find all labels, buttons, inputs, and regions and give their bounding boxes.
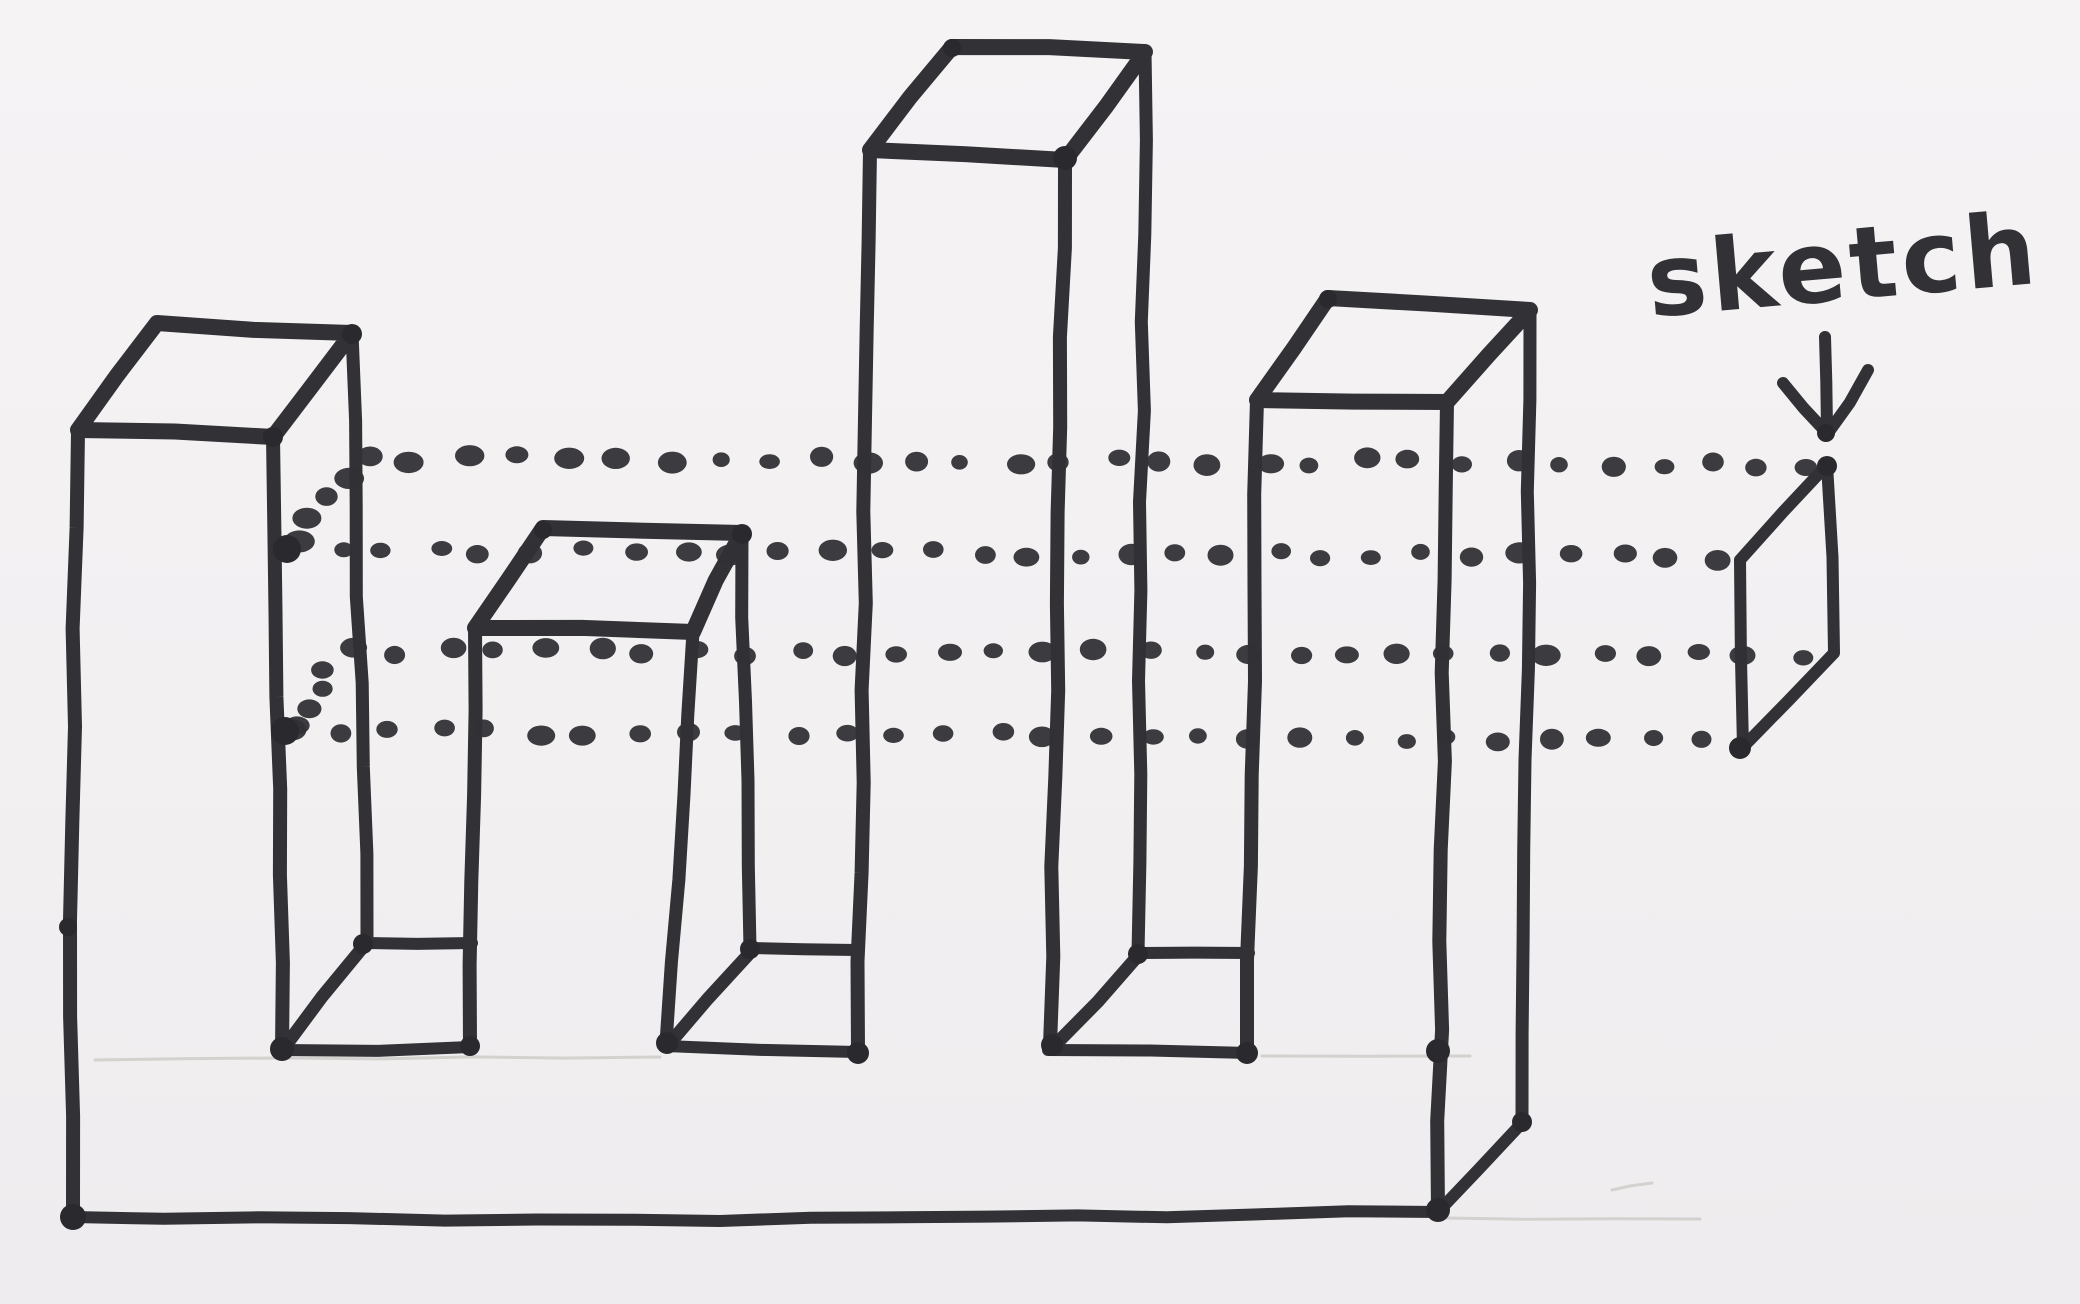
guide-dot	[1688, 644, 1710, 660]
marker-stroke-layer	[70, 47, 1868, 1221]
guide-dot	[1614, 545, 1637, 563]
notch1-floor-depth-edge	[284, 947, 363, 1048]
guide-dot	[1636, 646, 1661, 666]
guide-dot	[1460, 548, 1483, 567]
guide-dot	[1398, 734, 1416, 749]
ink-blob	[740, 939, 760, 959]
tower3-back-right-edge	[1138, 52, 1146, 953]
ink-blob	[1512, 1112, 1532, 1132]
guide-dot	[658, 452, 687, 474]
guide-dot	[759, 454, 780, 469]
pencil-guide-slab-top-left	[95, 1057, 660, 1060]
guide-dot	[716, 544, 745, 565]
guide-dot	[1310, 550, 1330, 566]
guide-dot	[370, 543, 390, 558]
ink-blob	[943, 39, 961, 57]
guide-dot	[1730, 646, 1756, 665]
tower3-top-face	[870, 47, 1145, 160]
guide-dot	[1236, 729, 1259, 749]
guide-dot	[297, 699, 321, 718]
guide-dot	[767, 542, 789, 560]
guide-dot	[1490, 644, 1510, 661]
ink-blob	[342, 324, 362, 344]
guide-dot	[993, 723, 1015, 741]
guide-dot	[810, 447, 833, 467]
guide-dot	[724, 725, 746, 741]
guide-dot	[1438, 729, 1456, 744]
guide-dot	[527, 726, 555, 746]
guide-dot	[334, 542, 353, 557]
notch3-floor-front-edge	[1048, 1050, 1249, 1053]
notch2-floor-depth-edge	[670, 955, 748, 1043]
ink-blob	[1128, 944, 1148, 964]
guide-dot	[872, 542, 894, 558]
guide-dot	[1705, 550, 1731, 571]
guide-dot	[1795, 459, 1818, 476]
guide-dot	[1196, 645, 1214, 660]
guide-dot	[625, 543, 648, 560]
tower4-top-face	[1257, 298, 1530, 402]
guide-dot	[883, 728, 904, 743]
guide-dot	[434, 720, 455, 737]
guide-dot	[1271, 543, 1291, 559]
guide-dot	[1745, 459, 1766, 477]
guide-dot	[340, 638, 367, 658]
ink-blob	[1426, 1039, 1450, 1063]
guide-dot	[1540, 729, 1564, 750]
ink-blob	[1041, 1034, 1063, 1056]
ink-blob	[732, 524, 752, 544]
guide-dot	[482, 642, 502, 659]
guide-dot	[1108, 450, 1130, 466]
ink-blob	[1817, 424, 1835, 442]
guide-dot	[629, 644, 653, 663]
extrusion-sketch-figure: sketch	[0, 0, 2080, 1304]
guide-dot	[1384, 644, 1410, 664]
ink-blob	[60, 1204, 86, 1230]
tower3-front-left-edge	[858, 150, 871, 1052]
guide-dot	[1602, 457, 1626, 477]
guide-dot	[1300, 458, 1319, 474]
guide-dot	[836, 725, 858, 742]
guide-dot	[311, 661, 334, 678]
guide-dot	[602, 448, 630, 469]
guide-dot	[313, 681, 333, 697]
guide-dot	[1644, 730, 1663, 746]
guide-dot	[1793, 650, 1813, 665]
guide-dot	[569, 726, 596, 746]
tower4-front-left-edge	[1247, 400, 1257, 1053]
guide-dot	[1452, 456, 1472, 472]
guide-dot	[905, 452, 928, 472]
guide-dot	[1189, 728, 1207, 743]
ink-blob	[270, 1037, 294, 1061]
ink-blob	[1426, 1198, 1450, 1222]
guide-dot	[629, 725, 651, 742]
guide-dot	[590, 638, 616, 660]
guide-dot	[505, 446, 528, 463]
guide-dot	[334, 468, 364, 489]
guide-dot	[984, 643, 1003, 658]
guide-dot	[1208, 545, 1234, 566]
guide-dot	[1507, 450, 1531, 471]
guide-dot	[1291, 647, 1312, 664]
paper-background: sketch	[0, 0, 2080, 1304]
guide-dot	[1411, 544, 1430, 560]
guide-dot	[933, 725, 954, 741]
guide-dot	[788, 727, 809, 745]
guide-dot	[441, 638, 467, 658]
guide-dot	[1072, 550, 1089, 565]
tower2-top-face	[475, 528, 742, 632]
ink-blob	[1729, 737, 1751, 759]
guide-dot	[1236, 645, 1261, 664]
guide-dot	[573, 541, 593, 556]
ink-blob	[847, 1042, 869, 1064]
guide-dot	[1287, 727, 1312, 747]
sketch-label: sketch	[1642, 190, 2044, 341]
guide-dot	[938, 644, 962, 661]
guide-dot	[455, 445, 484, 466]
extrusion-guide-row-2	[272, 540, 1731, 571]
label-arrow-head-left	[1783, 383, 1826, 432]
ink-blob	[263, 427, 283, 447]
ink-blob	[1236, 1042, 1258, 1064]
guide-dot	[1586, 729, 1611, 747]
guide-dot	[975, 546, 996, 564]
tower4-front-right-edge	[1437, 402, 1447, 1212]
notch3-floor-depth-edge	[1055, 958, 1136, 1045]
guide-dot	[1505, 542, 1534, 563]
guide-dot	[854, 452, 883, 474]
label-arrow-shaft	[1825, 337, 1827, 430]
notch2-floor-back-edge	[750, 948, 856, 950]
guide-dot	[1361, 550, 1381, 565]
guide-dot	[1354, 447, 1380, 468]
guide-dot	[1194, 454, 1221, 476]
guide-dot	[885, 646, 907, 662]
guide-dot	[1164, 544, 1185, 561]
ink-blob	[271, 717, 299, 745]
guide-dot	[1007, 454, 1035, 474]
tower2-front-right-edge	[666, 632, 693, 1043]
guide-dot	[315, 487, 337, 506]
tower2-back-right-edge	[742, 533, 750, 948]
guide-dot	[676, 542, 702, 561]
guide-dot	[532, 638, 559, 658]
notch1-floor-back-edge	[367, 943, 472, 944]
guide-dot	[376, 721, 397, 738]
extrusion-guide-row-1	[358, 445, 1818, 477]
pencil-guide-slab-bottom-right	[1445, 1218, 1700, 1219]
guide-dot	[1550, 457, 1568, 472]
guide-dot	[518, 543, 542, 563]
guide-dot	[394, 452, 424, 473]
extrusion-guide-row-3	[340, 638, 1813, 666]
guide-dot	[1653, 548, 1678, 568]
tower4-back-right-edge	[1522, 310, 1530, 1123]
guide-dot	[1140, 642, 1162, 659]
guide-dot	[1029, 642, 1057, 663]
guide-dot	[466, 545, 489, 563]
guide-dot	[1119, 544, 1145, 565]
guide-dot	[1047, 453, 1068, 471]
guide-dot	[292, 508, 321, 529]
guide-dot	[384, 646, 405, 664]
guide-dot	[677, 723, 700, 742]
guide-dot	[1395, 450, 1419, 469]
ink-blob	[273, 535, 301, 563]
guide-dot	[1014, 548, 1040, 567]
guide-dot	[1655, 459, 1675, 474]
guide-dot	[1258, 454, 1284, 473]
extrusion-guide-row-4	[279, 719, 1712, 751]
guide-dot	[474, 720, 494, 738]
tower2-front-left-edge	[470, 628, 476, 1047]
ink-blob	[59, 918, 77, 936]
guide-dot	[1433, 645, 1454, 661]
guide-dot	[1692, 731, 1712, 748]
guide-dot	[358, 447, 383, 467]
guide-dot	[1080, 639, 1107, 660]
slab-bottom-edge	[73, 1211, 1438, 1221]
ink-blob	[1319, 290, 1337, 308]
guide-dot	[1595, 645, 1616, 662]
tower3-front-right-edge	[1050, 160, 1065, 1045]
guide-dot	[951, 455, 968, 470]
guide-dot	[331, 724, 352, 742]
guide-dot	[554, 448, 584, 469]
guide-dot	[1560, 545, 1583, 562]
label-arrow-head-right	[1828, 370, 1868, 433]
ink-blob	[353, 934, 373, 954]
slab-right-depth-edge	[1438, 1123, 1522, 1212]
guide-dot	[1147, 451, 1170, 471]
ink-blob	[534, 521, 552, 539]
guide-dot	[734, 647, 756, 665]
guide-dot	[1702, 453, 1724, 472]
guide-dot	[431, 541, 452, 556]
guide-dot	[1486, 733, 1510, 752]
notch1-floor-front-edge	[282, 1047, 470, 1051]
guide-dot	[1532, 645, 1561, 666]
slab-left-edge	[70, 431, 78, 1217]
guide-dot	[833, 646, 857, 666]
guide-dot	[1346, 730, 1364, 746]
guide-dot	[1335, 646, 1359, 663]
guide-dot	[793, 642, 813, 659]
guide-dot	[713, 452, 730, 467]
guide-dot	[819, 540, 847, 561]
ink-blob	[656, 1032, 678, 1054]
ink-blob	[1053, 146, 1077, 170]
sketch-profile-outline	[1740, 465, 1834, 747]
tower1-top-face	[78, 323, 352, 437]
ink-blob	[1817, 456, 1837, 476]
guide-dot	[1029, 727, 1055, 748]
ink-blob	[460, 1036, 480, 1056]
notch2-floor-front-edge	[666, 1046, 858, 1052]
pencil-smudge	[1612, 1183, 1652, 1190]
guide-dot	[1143, 729, 1164, 744]
guide-dot	[1090, 728, 1113, 745]
guide-dot	[923, 541, 944, 558]
guide-dot	[686, 641, 709, 658]
